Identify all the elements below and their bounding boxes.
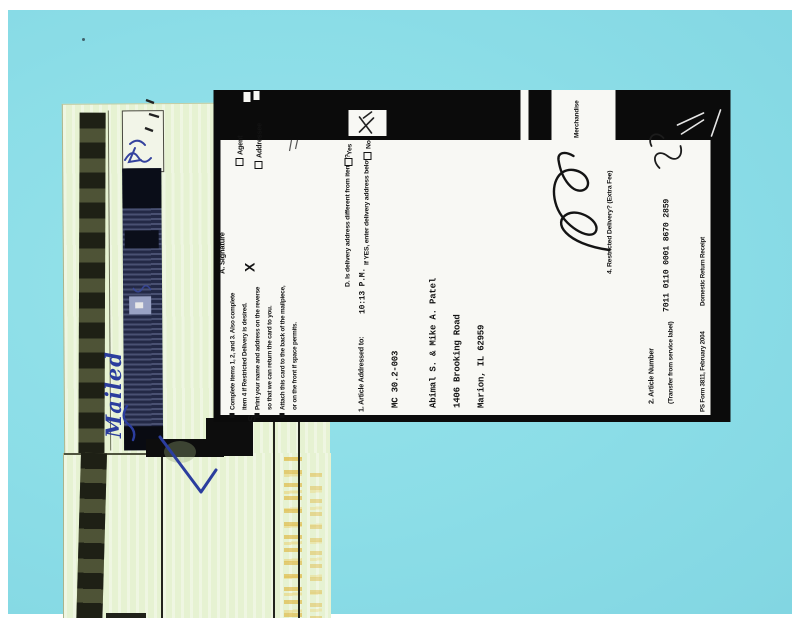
- return-receipt-card: A. Signature X Agent Addressee D. Is del…: [213, 90, 730, 422]
- service-area-scrawl: [553, 153, 609, 250]
- scanned-page: Mailed: [0, 0, 800, 618]
- return-receipt-form: A. Signature X Agent Addressee D. Is del…: [213, 90, 730, 422]
- card-scribbles: [213, 90, 730, 422]
- pen-mark-mid: [133, 286, 151, 292]
- pen-hook-stroke: [124, 406, 134, 440]
- scan-photo-background: Mailed: [8, 10, 792, 614]
- corner-scrawl-white: [677, 110, 720, 136]
- pen-squiggle-top: [125, 141, 151, 162]
- corner-scrawl-dark: [650, 134, 681, 168]
- patch-scribble: [359, 112, 373, 133]
- dark-dashes: [145, 100, 159, 131]
- faint-text-fragment: [289, 140, 297, 151]
